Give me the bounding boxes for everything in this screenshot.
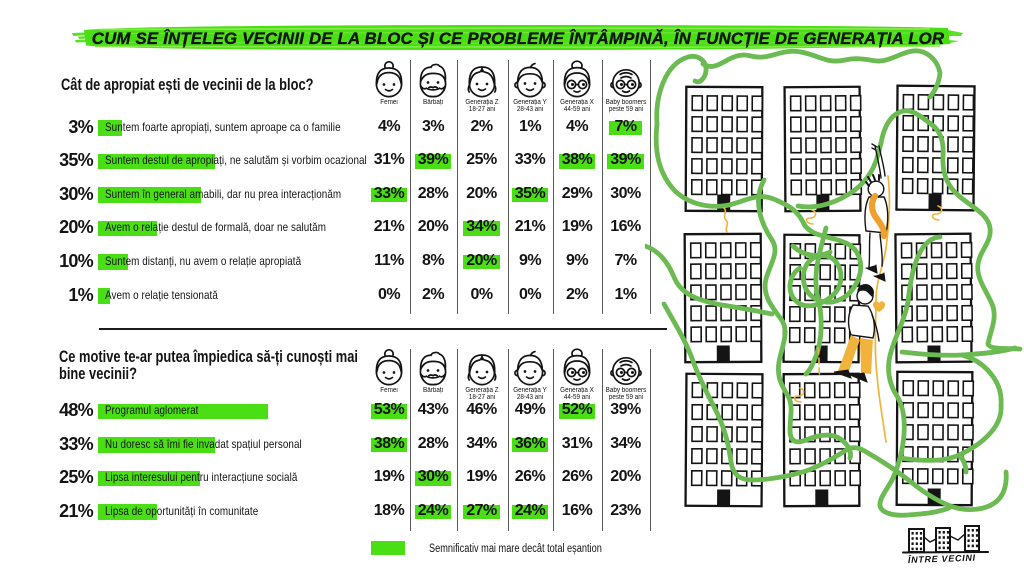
svg-text:ÎNTRE VECINI: ÎNTRE VECINI [908, 552, 976, 565]
